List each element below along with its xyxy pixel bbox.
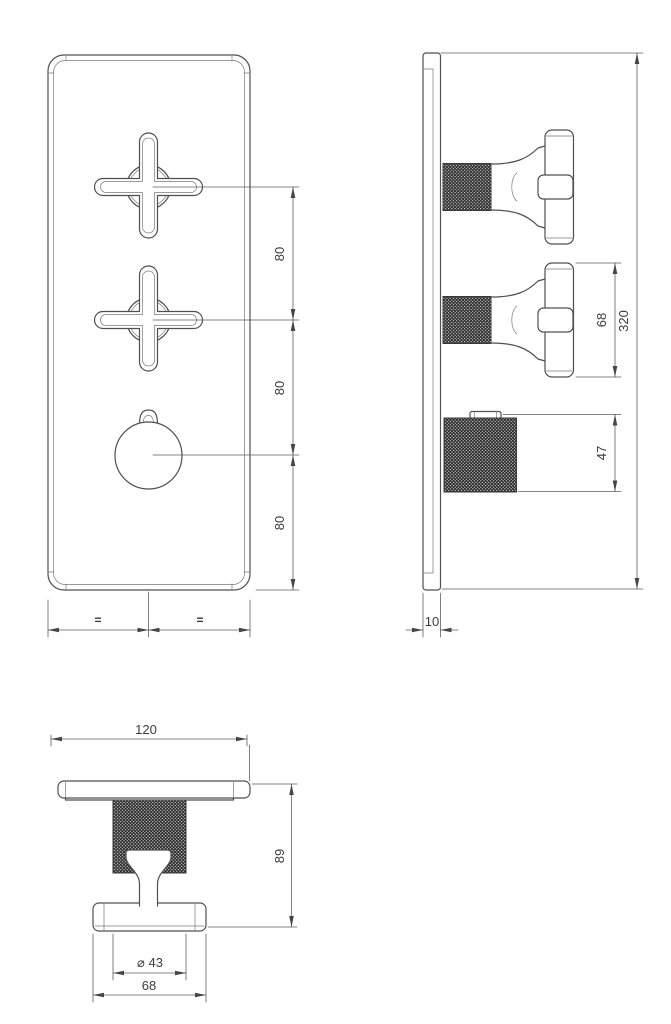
dim-label-diameter-43: ⌀ 43: [137, 955, 163, 970]
technical-drawing-page: 80 80 80 = =: [0, 0, 671, 1024]
bottom-handle-stem: [126, 850, 171, 906]
dim-knob-diameter: ⌀ 43: [113, 934, 186, 980]
dim-label-80-top: 80: [272, 247, 287, 261]
bottom-plate: [58, 781, 250, 800]
dim-label-47: 47: [594, 446, 609, 460]
dim-label-equal-right: =: [196, 613, 203, 627]
technical-drawing: 80 80 80 = =: [0, 0, 671, 1024]
dim-plate-thickness: 10: [406, 593, 458, 637]
dim-label-68-bottom: 68: [142, 978, 156, 993]
dim-label-80-middle: 80: [272, 381, 287, 395]
dim-handle-height: 68: [576, 263, 621, 377]
bottom-view: 120 89 ⌀ 43 68: [51, 722, 297, 1002]
dim-label-89: 89: [272, 849, 287, 863]
dim-label-equal-left: =: [94, 613, 101, 627]
side-view: 320 68 47 10: [406, 53, 643, 637]
dim-label-68-side: 68: [594, 313, 609, 327]
bottom-handle-bar: [93, 903, 206, 931]
dim-knob-height: 47: [503, 415, 621, 492]
knob-side: [444, 412, 517, 493]
dim-plate-width: 120: [51, 722, 250, 781]
front-view: 80 80 80 = =: [48, 55, 299, 637]
dim-label-80-bottom: 80: [272, 516, 287, 530]
cross-handle-middle-side: [443, 263, 574, 377]
dim-label-120: 120: [135, 722, 157, 737]
cross-handle-top-side: [443, 130, 574, 244]
dim-equal-halves: = =: [48, 592, 250, 637]
dim-label-320: 320: [616, 310, 631, 332]
side-plate: [423, 53, 441, 590]
dim-total-depth: 89: [208, 784, 297, 927]
dim-label-10: 10: [425, 614, 439, 629]
